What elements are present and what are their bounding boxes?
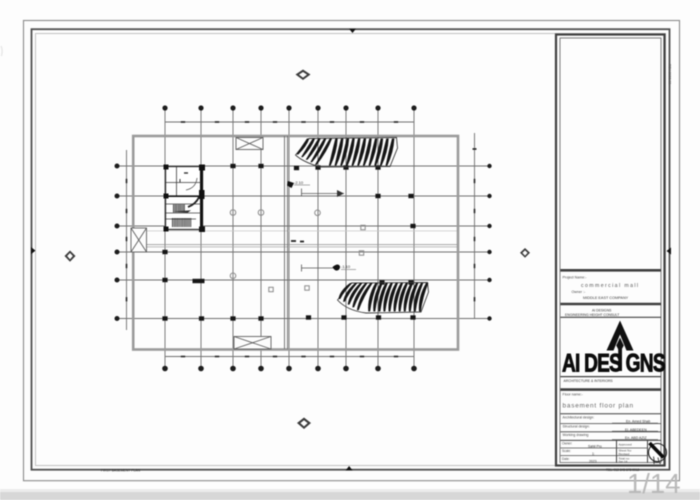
svg-text:Owner :-: Owner :-: [572, 290, 587, 294]
svg-text:Floor name:-: Floor name:-: [563, 393, 584, 397]
svg-text:commercial mall: commercial mall: [581, 283, 639, 289]
svg-text:FIRST BASEMENT PLAN: FIRST BASEMENT PLAN: [101, 468, 141, 472]
svg-text:Ser 14: Ser 14: [619, 460, 628, 464]
svg-text:MIDDLE EAST COMPANY: MIDDLE EAST COMPANY: [583, 296, 629, 300]
svg-text:El. ABEDEEN: El. ABEDEEN: [625, 428, 647, 432]
svg-text:Approved: Approved: [619, 443, 633, 447]
svg-text:basement floor plan: basement floor plan: [563, 403, 634, 410]
svg-text:-2.10: -2.10: [294, 180, 304, 185]
svg-text:Structural design:: Structural design:: [563, 425, 590, 429]
svg-text:2023: 2023: [589, 459, 597, 463]
svg-text:Owner:: Owner:: [562, 442, 572, 446]
svg-text:Sahil Pro: Sahil Pro: [588, 444, 602, 448]
svg-text:AI DES GNS: AI DES GNS: [562, 349, 665, 377]
svg-text:ENGINEERING HEIGHT CONSULT: ENGINEERING HEIGHT CONSULT: [565, 313, 619, 317]
svg-text:Working drawing: Working drawing: [563, 433, 589, 437]
svg-text:1/14: 1/14: [627, 468, 681, 499]
svg-text:En. ABD AZIZ: En. ABD AZIZ: [625, 436, 647, 440]
svg-text:1:: 1:: [592, 452, 595, 456]
svg-text:Architectural design:: Architectural design:: [563, 415, 595, 419]
svg-text:AI DESIGNS: AI DESIGNS: [592, 308, 612, 312]
svg-text:En. Amed Shab: En. Amed Shab: [626, 419, 650, 423]
svg-text:Date:: Date:: [562, 457, 570, 461]
svg-text:ARCHITECTURE & INTERIORS: ARCHITECTURE & INTERIORS: [564, 379, 614, 383]
svg-text:Scale:: Scale:: [562, 449, 571, 453]
svg-text:REV 2023.08: REV 2023.08: [668, 64, 672, 84]
svg-text:Revised: Revised: [619, 452, 630, 456]
svg-text:-1.10: -1.10: [341, 264, 351, 269]
svg-text:Project Name:-: Project Name:-: [563, 276, 588, 280]
